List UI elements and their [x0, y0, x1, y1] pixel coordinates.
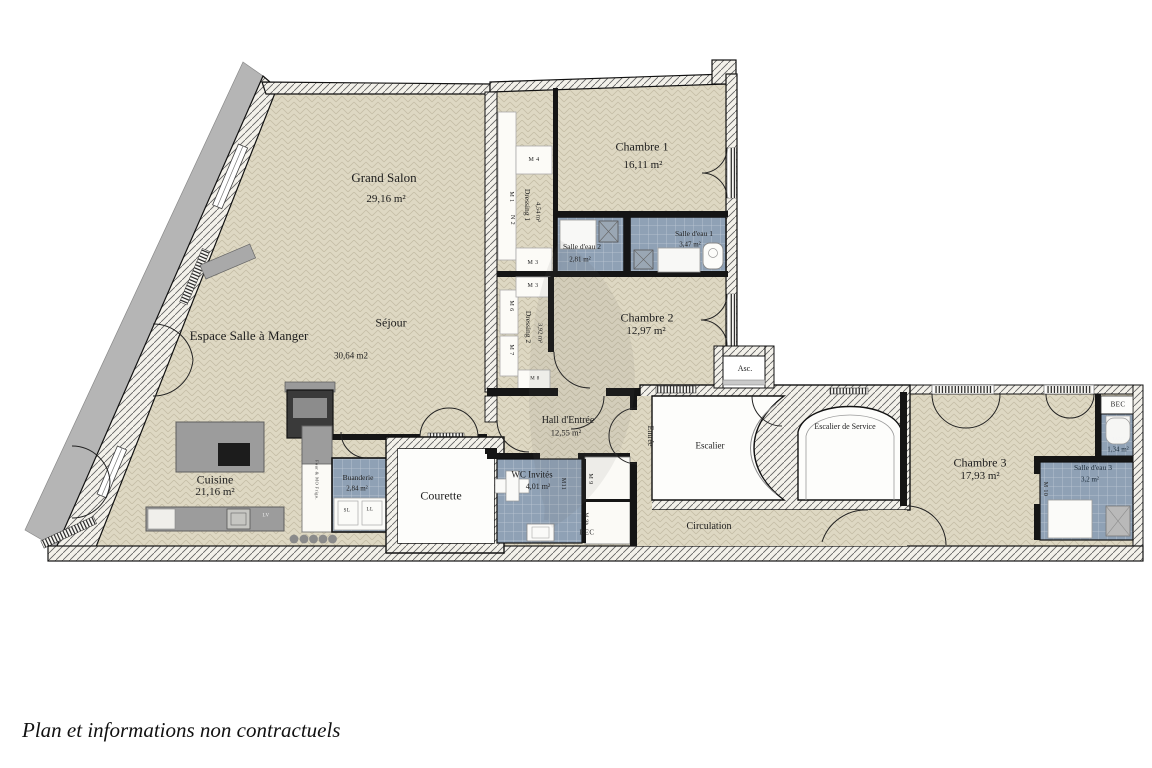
- area-label-buanderie: 2,84 m²: [346, 485, 368, 492]
- door-tag-m7: M 7: [508, 344, 514, 355]
- door-tag-m1: M 1: [508, 191, 514, 202]
- room-label-cuisine: Cuisine: [197, 474, 234, 487]
- tag-bec-hall: BEC: [580, 529, 595, 536]
- door-tag-m9-bottom: M 9b: [582, 512, 588, 525]
- area-label-salle-eau-1: 3,47 m²: [679, 241, 701, 248]
- area-label-salle-eau-3: 3,2 m²: [1081, 476, 1099, 483]
- tag-bec-wc: BEC: [1111, 401, 1126, 408]
- escalier-service-room: [798, 407, 902, 501]
- room-label-escalier: Escalier: [696, 441, 725, 450]
- tag-lv: LV: [262, 513, 269, 518]
- floor-plan-page: Grand Salon 29,16 m² Chambre 1 16,11 m² …: [0, 0, 1152, 768]
- area-label-dressing-1: 4,54 m²: [534, 202, 541, 222]
- room-label-circulation: Circulation: [687, 522, 732, 533]
- door-tag-m6: M 6: [508, 300, 514, 311]
- area-label-cuisine: 21,16 m²: [195, 487, 234, 499]
- area-label-sejour: 30,64 m2: [334, 351, 368, 360]
- tag-sl: SL: [344, 508, 351, 513]
- wall-bottom: [48, 546, 1143, 561]
- disclaimer-text: Plan et informations non contractuels: [22, 718, 340, 743]
- area-label-salle-eau-2: 2,81 m²: [569, 256, 591, 263]
- room-label-wc: WC: [1112, 436, 1126, 445]
- room-label-salle-eau-3: Salle d'eau 3: [1074, 464, 1112, 472]
- room-label-salle-eau-2: Salle d'eau 2: [563, 243, 601, 251]
- area-label-wc-invites: 4,01 m²: [526, 483, 551, 491]
- room-label-sejour: Séjour: [375, 317, 406, 330]
- area-label-chambre-1: 16,11 m²: [624, 160, 663, 172]
- room-label-grand-salon: Grand Salon: [351, 171, 416, 185]
- floor-plan-drawing: [0, 0, 1152, 768]
- wall-salon-dressing: [485, 92, 497, 392]
- room-label-salle-eau-1: Salle d'eau 1: [675, 230, 713, 238]
- appliance-tag: Four & MO Frigo.: [314, 460, 319, 500]
- room-label-dressing-1: Dressing 1: [523, 189, 531, 221]
- room-label-chambre-2: Chambre 2: [621, 312, 674, 325]
- room-label-hall: Hall d'Entrée: [542, 416, 595, 427]
- room-label-wc-invites: WC Invités: [511, 470, 552, 479]
- room-label-salle-a-manger: Espace Salle à Manger: [190, 329, 309, 343]
- room-label-chambre-3: Chambre 3: [954, 457, 1007, 470]
- area-label-chambre-3: 17,93 m²: [960, 471, 999, 483]
- room-label-buanderie: Buanderie: [343, 474, 374, 482]
- tag-ll: LL: [367, 507, 374, 512]
- room-label-chambre-1: Chambre 1: [616, 141, 669, 154]
- area-label-dressing-2: 3,92 m²: [536, 323, 543, 343]
- cooktop: [218, 443, 250, 466]
- door-tag-m4: M 4: [528, 157, 539, 163]
- circulation-floor: [637, 510, 907, 546]
- area-label-wc: 1,34 m²: [1107, 446, 1129, 453]
- kitchen-sink: [227, 509, 250, 529]
- door-tag-m3-mid: M 3: [527, 283, 538, 289]
- room-label-escalier-service: Escalier de Service: [814, 423, 875, 431]
- wall-top-salon: [262, 82, 490, 94]
- room-label-courette: Courette: [420, 490, 461, 503]
- wall-right: [1133, 385, 1143, 553]
- door-tag-m10: M 10: [1042, 482, 1048, 496]
- door-tag-m3-top: M 3: [527, 260, 538, 266]
- area-label-chambre-2: 12,97 m²: [626, 326, 665, 338]
- door-tag-m9-top: M 9: [587, 473, 593, 484]
- room-label-entree: Entrée: [646, 426, 654, 447]
- room-label-dressing-2: Dressing 2: [524, 311, 532, 343]
- room-label-ascenseur: Asc.: [738, 365, 752, 373]
- area-label-grand-salon: 29,16 m²: [366, 194, 405, 206]
- door-tag-n2: N 2: [509, 215, 515, 225]
- entree-strip: [637, 396, 652, 510]
- door-tag-m11: M11: [560, 478, 566, 490]
- door-tag-m8: M 8: [530, 376, 539, 381]
- area-label-hall: 12,55 m²: [551, 429, 581, 438]
